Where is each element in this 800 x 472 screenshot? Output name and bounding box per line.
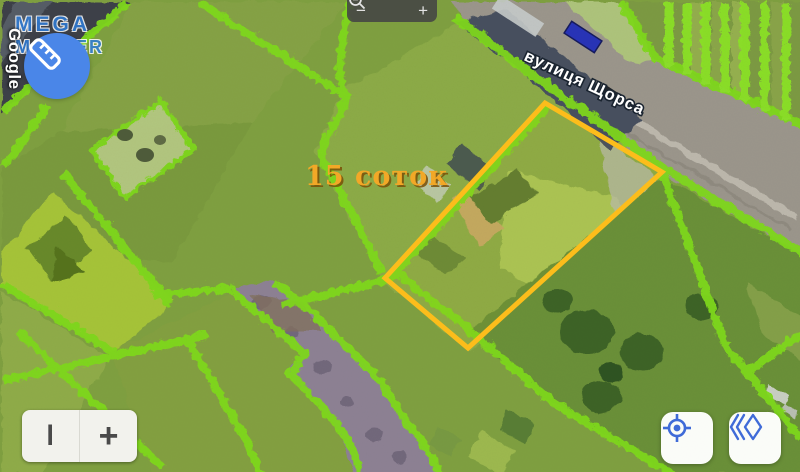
magnifier-icon[interactable]: [347, 0, 367, 11]
satellite-map[interactable]: вулиця Щорса 15 соток: [0, 0, 800, 472]
locate-button[interactable]: [661, 412, 713, 464]
crosshair-target-icon: [661, 412, 693, 444]
ruler-icon: [24, 33, 66, 75]
area-label: 15 соток: [305, 161, 449, 192]
zoom-in-button-bottom[interactable]: +: [80, 410, 137, 462]
bottom-left-control: I +: [22, 410, 137, 462]
bar-button[interactable]: I: [22, 410, 80, 462]
zoom-toolbar: − +: [347, 0, 437, 22]
zoom-in-button[interactable]: +: [418, 0, 428, 22]
navigation-button[interactable]: [729, 412, 781, 464]
bar-glyph: I: [47, 419, 54, 453]
double-chevron-diamond-icon: [729, 412, 763, 442]
map-screenshot: вулиця Щорса 15 соток MEGA MAKLER Google…: [0, 0, 800, 472]
grain-overlay: [0, 0, 800, 472]
google-watermark: Google: [4, 28, 24, 90]
measure-button[interactable]: [24, 33, 90, 99]
